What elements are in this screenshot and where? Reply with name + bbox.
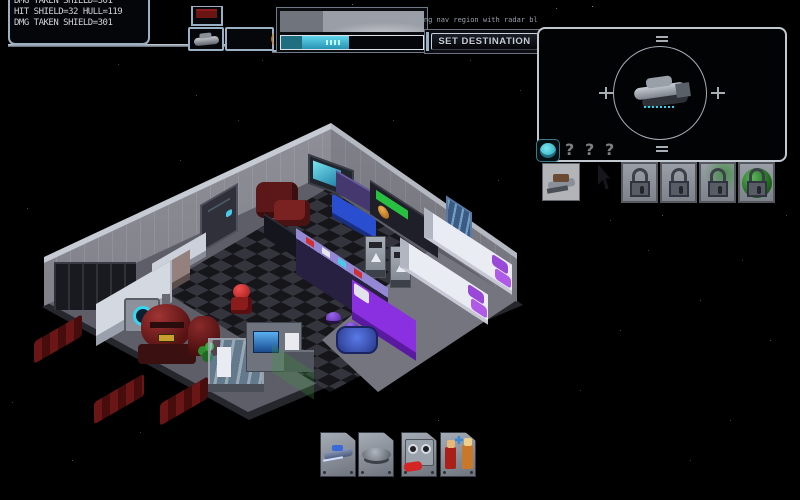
tick-mark: [656, 40, 668, 42]
log-line: DMG TAKEN SHIELD=301: [14, 18, 148, 29]
brain-icon[interactable]: [536, 139, 560, 162]
tick-mark: [656, 146, 668, 148]
log-line: DMG TAKEN SHIELD=301: [14, 0, 148, 7]
unknown-slot[interactable]: ?: [585, 140, 603, 159]
dispenser[interactable]: [365, 236, 386, 278]
frame-accent: [426, 32, 429, 51]
status-note: Adding nav region with radar bldg: [407, 16, 537, 27]
locked-slot[interactable]: [621, 162, 658, 203]
tick-mark: [656, 150, 668, 152]
inventory-slot-ship[interactable]: [320, 432, 356, 477]
combat-log-panel: DMG TAKEN SHIELD=301 HIT SHIELD=32 HULL=…: [8, 0, 150, 45]
player-ship-icon: [194, 36, 220, 47]
target-thumbnail[interactable]: [191, 6, 223, 26]
enemy-hull-bar: [196, 9, 217, 18]
engine-pod: [34, 314, 82, 364]
inventory-slot-platform[interactable]: [358, 432, 394, 477]
engine-pod: [94, 374, 144, 425]
unknown-slot[interactable]: ?: [605, 140, 623, 159]
tick-mark: [717, 87, 719, 99]
radar-ship-sprite[interactable]: [624, 73, 700, 111]
away-ship-slot[interactable]: [542, 163, 580, 201]
locked-slot[interactable]: [660, 162, 697, 203]
med-cradle[interactable]: [336, 326, 378, 354]
combat-log: DMG TAKEN SHIELD=301 HIT SHIELD=32 HULL=…: [14, 0, 148, 29]
set-destination-button[interactable]: SET DESTINATION: [431, 33, 538, 50]
locked-planet-slot[interactable]: [738, 162, 775, 203]
inventory-slot-machine[interactable]: [401, 432, 437, 477]
tick-mark: [656, 36, 668, 38]
bar-stool[interactable]: [326, 312, 341, 324]
red-robot[interactable]: [228, 284, 254, 316]
inventory-slot-crew[interactable]: [440, 432, 476, 477]
hull-status-panel: [276, 7, 428, 53]
progress-fill-dark: [281, 36, 302, 49]
game-screen: DMG TAKEN SHIELD=301 HIT SHIELD=32 HULL=…: [0, 0, 800, 500]
progress-bar: [280, 35, 424, 50]
ammo-counter: (1)8: [225, 27, 274, 51]
locked-slot[interactable]: [699, 162, 736, 203]
destination-frame: SET DESTINATION: [424, 29, 542, 54]
player-ship-slot[interactable]: [188, 27, 224, 51]
log-line: HIT SHIELD=32 HULL=119: [14, 7, 148, 18]
tick-mark: [605, 87, 607, 99]
unknown-slot[interactable]: ?: [565, 140, 583, 159]
progress-glyphs: [326, 40, 340, 45]
hull-silhouette: [280, 11, 424, 32]
